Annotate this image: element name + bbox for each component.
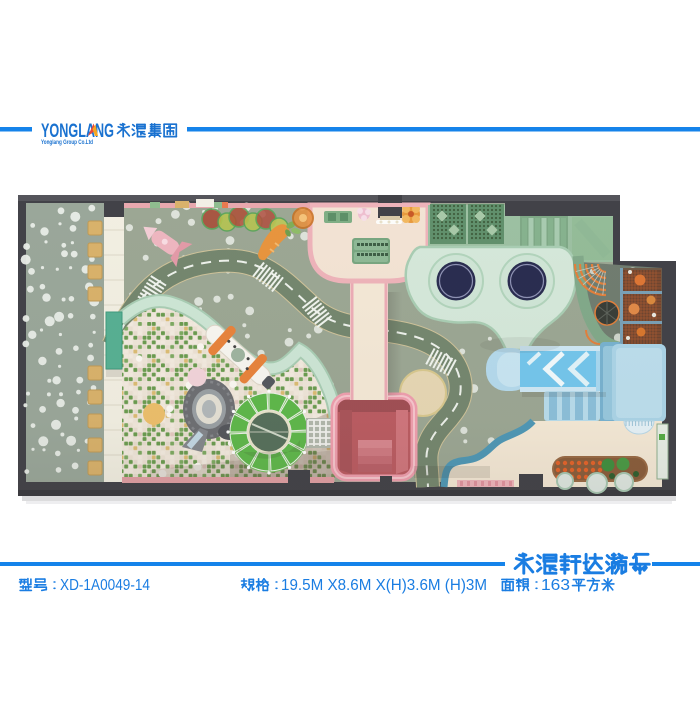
svg-text:Yonglang Group Co.Ltd: Yonglang Group Co.Ltd <box>41 139 93 146</box>
svg-text:XD-1A0049-14: XD-1A0049-14 <box>60 577 150 594</box>
svg-text:163: 163 <box>541 577 570 594</box>
svg-text:19.5M X8.6M X(H)3.6M (H)3M: 19.5M X8.6M X(H)3.6M (H)3M <box>281 577 487 594</box>
